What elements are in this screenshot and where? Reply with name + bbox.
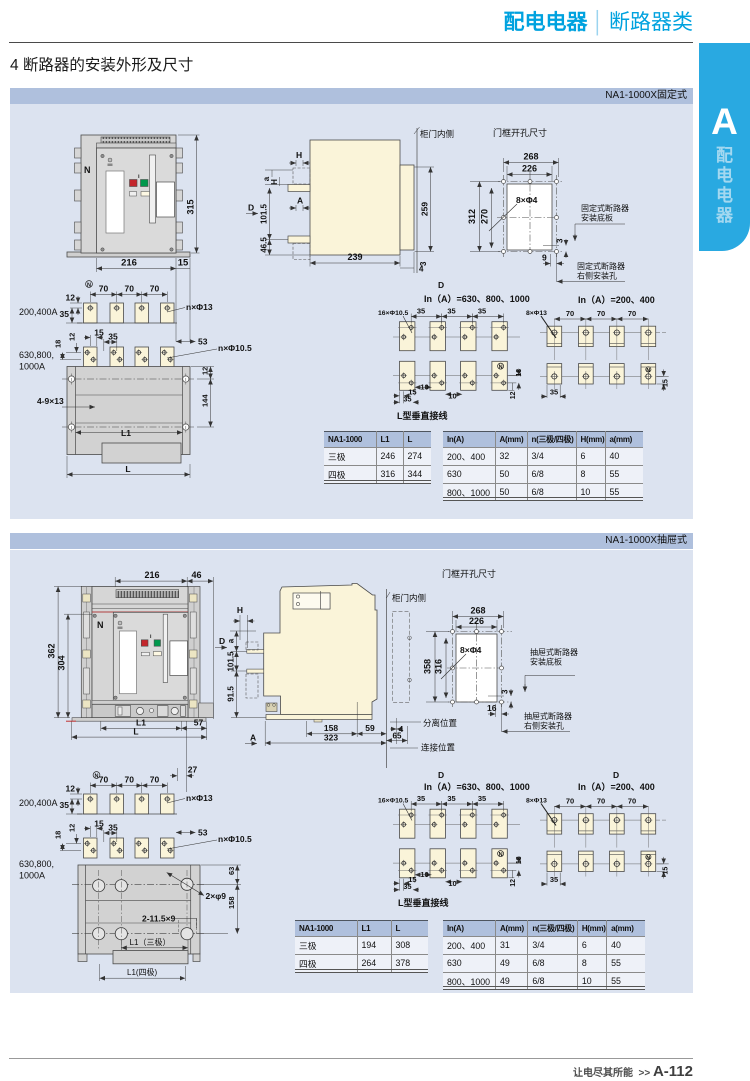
svg-text:35: 35: [447, 794, 455, 803]
svg-text:35: 35: [403, 882, 411, 891]
svg-text:10: 10: [420, 382, 428, 391]
svg-text:15: 15: [178, 258, 189, 269]
svg-text:n×Φ10.5: n×Φ10.5: [218, 834, 252, 844]
svg-text:安装底板: 安装底板: [530, 657, 562, 667]
svg-text:10: 10: [448, 391, 456, 400]
svg-text:91.5: 91.5: [227, 686, 236, 702]
svg-text:35: 35: [447, 307, 455, 316]
svg-text:D: D: [438, 280, 444, 290]
svg-text:L型垂直接线: L型垂直接线: [397, 410, 448, 421]
svg-text:70: 70: [628, 309, 636, 318]
svg-text:35: 35: [417, 794, 425, 803]
svg-text:连接位置: 连接位置: [421, 743, 456, 753]
svg-text:In（A）=200、400: In（A）=200、400: [578, 782, 655, 792]
svg-text:18: 18: [54, 340, 63, 348]
svg-text:门框开孔尺寸: 门框开孔尺寸: [442, 568, 496, 579]
svg-text:2-11.5×9: 2-11.5×9: [142, 914, 176, 924]
svg-text:10: 10: [420, 870, 428, 879]
svg-text:158: 158: [227, 896, 236, 909]
svg-text:358: 358: [423, 659, 433, 674]
svg-text:35: 35: [60, 800, 70, 810]
svg-text:L1(四极): L1(四极): [127, 967, 158, 977]
svg-text:15: 15: [663, 379, 670, 387]
svg-text:右侧安装孔: 右侧安装孔: [524, 721, 564, 731]
svg-text:H: H: [237, 605, 243, 615]
svg-text:259: 259: [420, 202, 430, 216]
svg-text:216: 216: [144, 570, 159, 580]
svg-text:70: 70: [566, 309, 574, 318]
svg-text:35: 35: [550, 388, 558, 397]
svg-text:固定式断路器: 固定式断路器: [577, 261, 625, 271]
svg-text:A: A: [250, 733, 256, 743]
svg-text:70: 70: [628, 797, 636, 806]
svg-text:35: 35: [403, 394, 411, 403]
svg-text:200,400A: 200,400A: [19, 307, 58, 317]
svg-text:70: 70: [566, 797, 574, 806]
svg-text:15: 15: [663, 867, 670, 875]
svg-text:312: 312: [467, 209, 477, 224]
svg-text:10: 10: [448, 879, 456, 888]
svg-text:18: 18: [54, 831, 63, 839]
svg-text:12: 12: [66, 784, 76, 794]
svg-text:35: 35: [478, 307, 486, 316]
svg-text:46.5: 46.5: [260, 237, 269, 253]
svg-text:18: 18: [516, 369, 523, 377]
svg-text:53: 53: [198, 337, 208, 347]
svg-text:抽屉式断路器: 抽屉式断路器: [524, 711, 572, 721]
svg-text:n×Φ13: n×Φ13: [186, 302, 213, 312]
svg-text:2×φ9: 2×φ9: [206, 891, 227, 901]
svg-text:N: N: [499, 852, 503, 858]
svg-text:57: 57: [194, 718, 204, 728]
svg-text:3: 3: [501, 689, 510, 694]
svg-text:630,800,: 630,800,: [19, 350, 54, 360]
svg-text:1000A: 1000A: [19, 871, 45, 881]
svg-text:16: 16: [487, 703, 497, 713]
svg-text:27: 27: [188, 765, 198, 775]
svg-text:216: 216: [121, 258, 137, 269]
svg-text:16×Φ10.5: 16×Φ10.5: [378, 798, 409, 805]
svg-text:A: A: [297, 196, 303, 206]
svg-text:12: 12: [510, 391, 517, 399]
svg-text:D: D: [219, 636, 225, 646]
svg-text:70: 70: [597, 309, 605, 318]
svg-text:70: 70: [125, 775, 135, 785]
svg-text:362: 362: [47, 643, 57, 658]
svg-text:L: L: [133, 726, 138, 736]
svg-text:12: 12: [510, 879, 517, 887]
svg-text:N: N: [95, 773, 99, 779]
svg-text:D: D: [248, 203, 254, 213]
svg-text:70: 70: [597, 797, 605, 806]
svg-text:12: 12: [68, 333, 77, 341]
svg-text:右侧安装孔: 右侧安装孔: [577, 271, 617, 281]
svg-text:8×Φ13: 8×Φ13: [526, 310, 547, 317]
svg-text:8×Φ13: 8×Φ13: [526, 798, 547, 805]
svg-text:12: 12: [201, 367, 210, 375]
svg-text:35: 35: [108, 332, 118, 342]
svg-text:8×Φ4: 8×Φ4: [460, 645, 482, 655]
svg-text:70: 70: [99, 775, 109, 785]
svg-text:D: D: [613, 770, 619, 780]
svg-text:630,800,: 630,800,: [19, 859, 54, 869]
svg-text:a: a: [227, 638, 236, 643]
svg-text:70: 70: [150, 775, 160, 785]
svg-text:H: H: [296, 150, 302, 160]
svg-text:315: 315: [186, 199, 196, 214]
svg-text:70: 70: [150, 284, 160, 294]
svg-text:12: 12: [66, 293, 76, 303]
svg-text:18: 18: [516, 856, 523, 864]
svg-text:35: 35: [550, 875, 558, 884]
svg-text:3: 3: [419, 261, 428, 266]
svg-text:门框开孔尺寸: 门框开孔尺寸: [493, 127, 547, 138]
svg-text:12: 12: [68, 824, 77, 832]
svg-text:268: 268: [523, 152, 538, 162]
svg-text:35: 35: [417, 307, 425, 316]
svg-text:In（A）=200、400: In（A）=200、400: [578, 295, 655, 305]
svg-text:D: D: [438, 770, 444, 780]
svg-text:268: 268: [470, 606, 485, 616]
svg-text:抽屉式断路器: 抽屉式断路器: [530, 647, 578, 657]
svg-text:4-9×13: 4-9×13: [37, 396, 64, 406]
svg-text:n×Φ10.5: n×Φ10.5: [218, 343, 252, 353]
svg-text:65: 65: [393, 732, 402, 741]
svg-text:226: 226: [522, 164, 537, 174]
svg-text:In（A）=630、800、1000: In（A）=630、800、1000: [424, 782, 530, 792]
svg-text:N: N: [84, 165, 91, 175]
svg-text:N: N: [87, 282, 91, 288]
svg-text:9: 9: [542, 253, 547, 263]
svg-text:柜门内侧: 柜门内侧: [392, 593, 426, 603]
svg-text:1000A: 1000A: [19, 362, 45, 372]
svg-text:35: 35: [478, 794, 486, 803]
svg-text:70: 70: [125, 284, 135, 294]
svg-text:59: 59: [365, 723, 375, 733]
svg-text:L: L: [125, 464, 130, 474]
svg-text:L1（三极）: L1（三极）: [130, 937, 171, 947]
svg-text:L1: L1: [121, 428, 131, 438]
svg-text:分离位置: 分离位置: [423, 718, 458, 728]
svg-text:固定式断路器: 固定式断路器: [581, 203, 629, 213]
svg-text:323: 323: [324, 732, 338, 742]
svg-text:15: 15: [94, 819, 104, 829]
svg-text:16×Φ10.5: 16×Φ10.5: [378, 310, 409, 317]
svg-text:144: 144: [201, 394, 210, 407]
svg-text:15: 15: [94, 328, 104, 338]
svg-text:3: 3: [556, 238, 565, 243]
svg-text:H: H: [270, 179, 279, 185]
svg-text:8×Φ4: 8×Φ4: [516, 195, 538, 205]
svg-text:101.5: 101.5: [227, 651, 236, 672]
svg-text:70: 70: [99, 284, 109, 294]
svg-text:N: N: [97, 620, 104, 630]
svg-text:158: 158: [324, 723, 338, 733]
svg-text:63: 63: [227, 867, 236, 875]
svg-text:柜门内侧: 柜门内侧: [420, 129, 454, 139]
svg-text:226: 226: [469, 616, 484, 626]
svg-text:35: 35: [108, 823, 118, 833]
svg-text:239: 239: [347, 252, 362, 262]
svg-text:46: 46: [191, 570, 201, 580]
svg-text:In（A）=630、800、1000: In（A）=630、800、1000: [424, 294, 530, 304]
svg-text:N: N: [499, 365, 503, 371]
svg-text:101.5: 101.5: [260, 203, 269, 224]
svg-text:316: 316: [434, 659, 444, 674]
svg-text:53: 53: [198, 828, 208, 838]
svg-text:304: 304: [57, 655, 67, 670]
svg-text:n×Φ13: n×Φ13: [186, 793, 213, 803]
svg-text:35: 35: [60, 309, 70, 319]
svg-text:270: 270: [480, 209, 490, 224]
svg-text:L型垂直接线: L型垂直接线: [398, 897, 449, 908]
svg-text:安装底板: 安装底板: [581, 213, 613, 223]
svg-text:200,400A: 200,400A: [19, 798, 58, 808]
